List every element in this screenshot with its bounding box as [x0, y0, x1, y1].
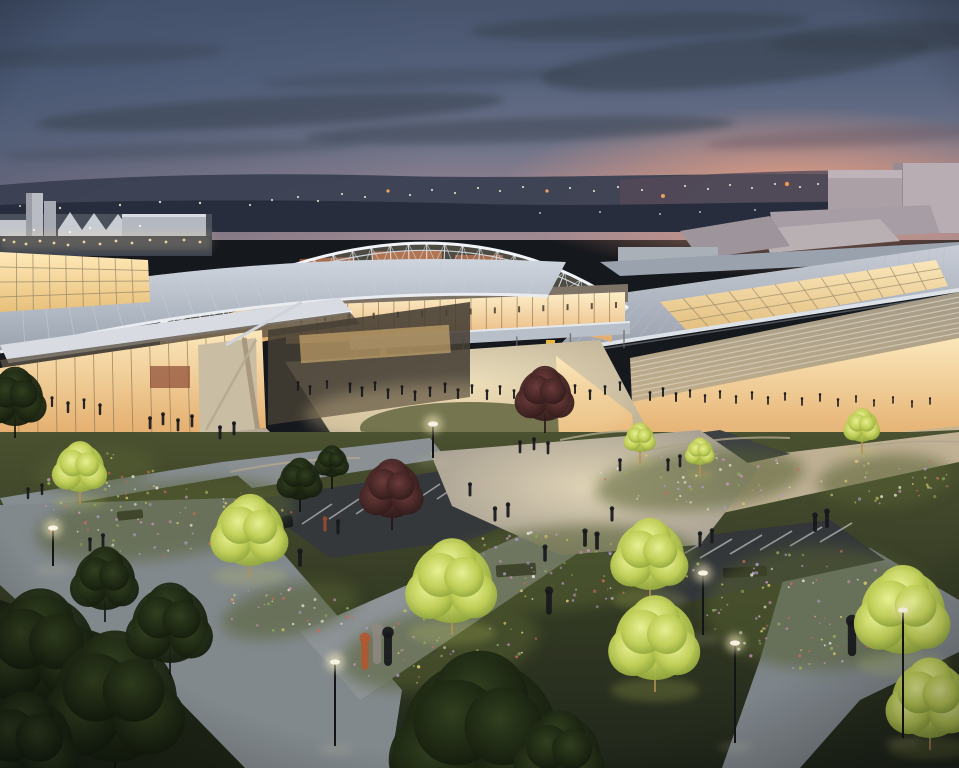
architectural-dusk-rendering — [0, 0, 959, 768]
vignette — [0, 0, 959, 768]
rendering-canvas — [0, 0, 959, 768]
